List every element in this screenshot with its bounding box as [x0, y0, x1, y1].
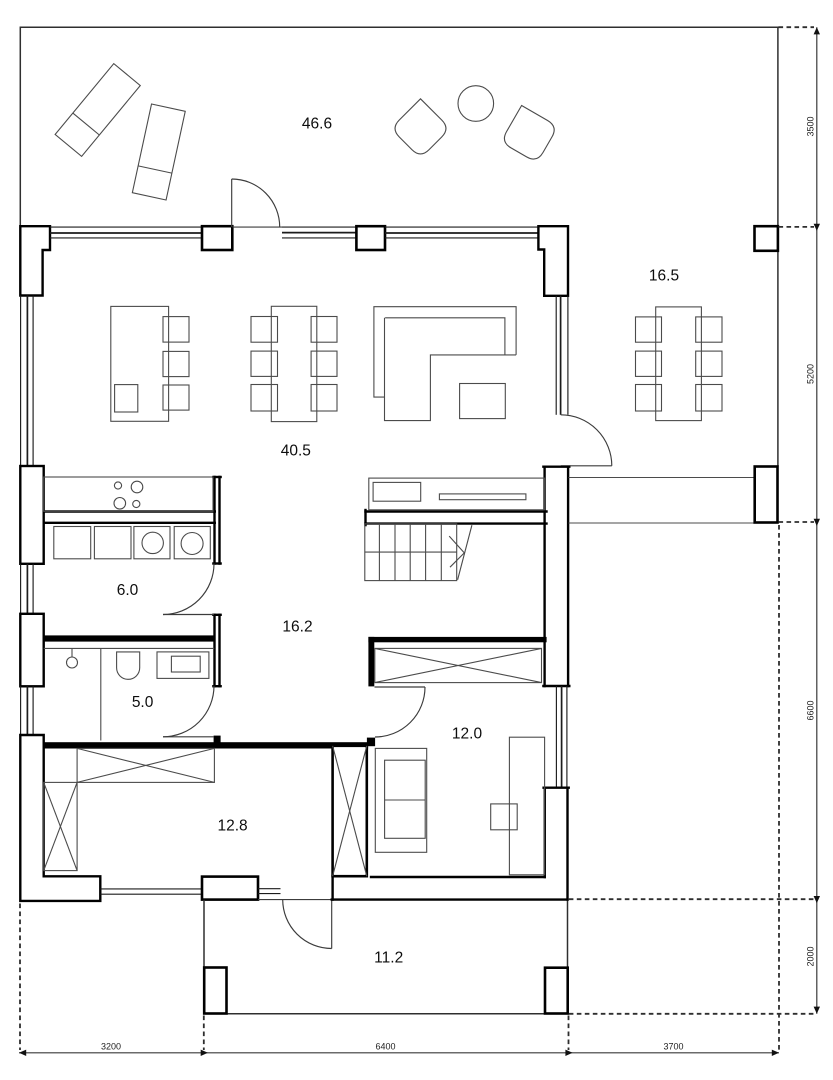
svg-text:5200: 5200 [806, 364, 816, 384]
svg-text:6600: 6600 [806, 700, 816, 720]
svg-text:12.8: 12.8 [218, 818, 248, 835]
svg-text:3500: 3500 [806, 116, 816, 136]
svg-text:2000: 2000 [806, 946, 816, 966]
svg-text:16.5: 16.5 [649, 268, 679, 285]
svg-text:3700: 3700 [663, 1042, 683, 1052]
svg-text:46.6: 46.6 [302, 116, 332, 133]
svg-text:11.2: 11.2 [374, 950, 403, 967]
svg-text:6400: 6400 [375, 1042, 395, 1052]
svg-text:3200: 3200 [101, 1042, 121, 1052]
svg-text:16.2: 16.2 [282, 619, 312, 636]
svg-text:12.0: 12.0 [452, 726, 483, 743]
svg-text:5.0: 5.0 [132, 694, 154, 711]
svg-text:6.0: 6.0 [117, 582, 139, 599]
svg-text:40.5: 40.5 [281, 442, 311, 459]
